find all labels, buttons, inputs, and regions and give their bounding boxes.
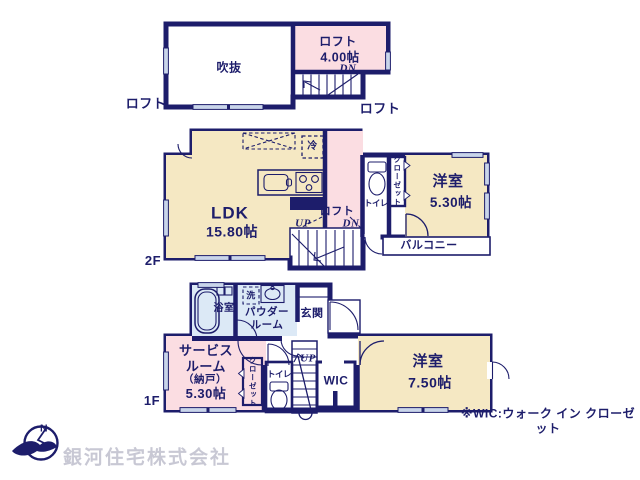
floor-label-2f: 2F bbox=[145, 253, 161, 269]
bedroom1-fill bbox=[358, 336, 490, 410]
service-room-size: 5.30帖 bbox=[186, 386, 227, 402]
laundry-label: 洗 bbox=[246, 291, 256, 302]
window bbox=[485, 193, 490, 219]
compass-n-label: N bbox=[40, 423, 48, 436]
loft-room-label: ロフト bbox=[319, 35, 357, 50]
floor-label-1f: 1F bbox=[144, 393, 160, 409]
bedroom-size-2f: 5.30帖 bbox=[430, 195, 472, 211]
up-label-1f: UP bbox=[300, 352, 316, 365]
window bbox=[485, 163, 490, 185]
dn-label-2f: DN bbox=[343, 217, 360, 230]
closet-label-2f: クローゼット bbox=[393, 156, 401, 207]
wic-label: WIC bbox=[324, 374, 349, 389]
window bbox=[198, 283, 224, 288]
company-name: 銀河住宅株式会社 bbox=[63, 446, 231, 469]
closet-label-1f: クローゼット bbox=[249, 357, 257, 408]
powder-room-label: パウダー ルーム bbox=[245, 306, 289, 332]
up-label-2f: UP bbox=[295, 217, 311, 230]
bedroom-label-2f: 洋室 bbox=[432, 173, 463, 191]
loft-outside-label-right: ロフト bbox=[360, 101, 401, 117]
loft-dn-label: DN bbox=[340, 62, 357, 75]
window bbox=[164, 200, 169, 236]
bedroom-size-1f: 7.50帖 bbox=[408, 374, 452, 391]
bedroom-label-1f: 洋室 bbox=[412, 353, 443, 371]
service-room-kura: （納戸） bbox=[183, 374, 227, 387]
ldk-label: LDK bbox=[211, 204, 249, 225]
compass-north-icon bbox=[12, 427, 58, 460]
loft-outside-label-left: ロフト bbox=[126, 96, 167, 112]
window bbox=[164, 352, 169, 390]
balcony-label: バルコニー bbox=[400, 239, 457, 252]
ldk-size: 15.80帖 bbox=[206, 223, 258, 240]
entrance-label: 玄関 bbox=[301, 307, 324, 320]
bedroom1-exterior-door bbox=[487, 362, 509, 379]
floorplan-canvas: 吹抜 ロフト 4.00帖 DN ロフト ロフト LDK 15.80帖 冷 ロフト… bbox=[0, 0, 640, 480]
bath-label: 浴室 bbox=[214, 303, 235, 315]
loft-window bbox=[164, 48, 169, 74]
toilet-label-2f: トイレ bbox=[364, 198, 388, 208]
window bbox=[452, 153, 483, 158]
service-room-label: サービス ルーム bbox=[179, 343, 233, 375]
fridge-label: 冷 bbox=[307, 141, 318, 153]
void-label: 吹抜 bbox=[216, 61, 241, 76]
wic-note: ※WIC:ウォーク イン クローゼット bbox=[456, 406, 640, 435]
toilet-label-1f: トイレ bbox=[267, 369, 291, 379]
loft-window bbox=[386, 52, 391, 70]
entrance-porch bbox=[328, 300, 360, 333]
